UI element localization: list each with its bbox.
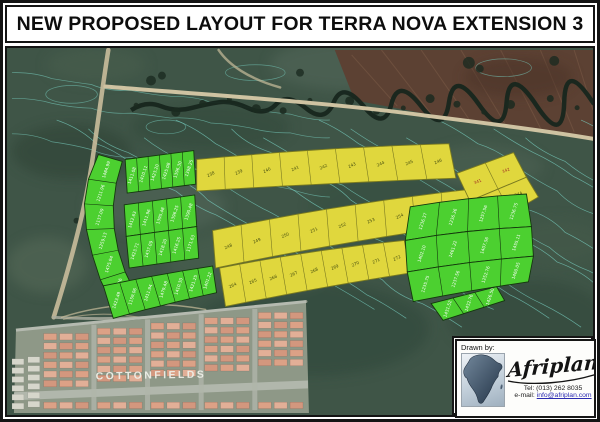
house [274, 350, 287, 356]
house [236, 355, 249, 361]
tree [296, 69, 304, 77]
house [44, 402, 57, 408]
tree [199, 100, 206, 107]
housing-street [145, 319, 150, 410]
house [97, 356, 110, 362]
house [221, 318, 234, 324]
title-bar: NEW PROPOSED LAYOUT FOR TERRA NOVA EXTEN… [5, 5, 595, 43]
house [44, 362, 57, 368]
building [28, 401, 40, 407]
house [221, 336, 234, 342]
building [28, 383, 40, 389]
house [76, 334, 89, 340]
tree [463, 57, 475, 69]
building [12, 377, 24, 383]
house [97, 347, 110, 353]
house [183, 351, 196, 357]
house [129, 402, 142, 408]
house [76, 380, 89, 386]
house [221, 365, 234, 371]
house [97, 328, 110, 334]
email-row: e-mail: info@afriplan.com [507, 392, 596, 399]
house [258, 341, 271, 347]
house [205, 327, 218, 333]
house [274, 322, 287, 328]
house [167, 323, 180, 329]
building [28, 392, 40, 398]
house [183, 332, 196, 338]
tree [506, 100, 515, 109]
house [205, 365, 218, 371]
house [258, 322, 271, 328]
housing-street [91, 325, 96, 410]
house [60, 371, 73, 377]
house [129, 338, 142, 344]
tel-label: Tel: (013) 262 8035 [507, 385, 596, 392]
house [258, 350, 271, 356]
tree [401, 105, 406, 110]
house [290, 312, 303, 318]
house [44, 352, 57, 358]
house [290, 402, 303, 408]
house [76, 402, 89, 408]
credit-box: Drawn by: Afriplan Tel: (013) 262 8035 e… [455, 339, 596, 418]
email-label: e-mail: [514, 392, 536, 399]
tree [345, 97, 354, 106]
tree [481, 110, 486, 115]
housing-street [252, 309, 257, 410]
house [274, 341, 287, 347]
building [12, 359, 24, 365]
house [183, 360, 196, 366]
house [76, 362, 89, 368]
house [76, 343, 89, 349]
house [290, 350, 303, 356]
house [76, 371, 89, 377]
house [290, 331, 303, 337]
tree [134, 103, 139, 108]
house [205, 318, 218, 324]
house [167, 360, 180, 366]
house [97, 402, 110, 408]
house [274, 359, 287, 365]
house [236, 402, 249, 408]
building [12, 394, 24, 400]
house [258, 359, 271, 365]
house [258, 331, 271, 337]
house [60, 343, 73, 349]
building [12, 385, 24, 391]
house [129, 347, 142, 353]
house [183, 402, 196, 408]
house [151, 342, 164, 348]
house [113, 356, 126, 362]
house [205, 402, 218, 408]
house [221, 327, 234, 333]
email-link: info@afriplan.com [537, 392, 592, 399]
housing-street [199, 314, 204, 410]
house [221, 346, 234, 352]
page: NEW PROPOSED LAYOUT FOR TERRA NOVA EXTEN… [0, 0, 600, 422]
house [274, 402, 287, 408]
house [183, 323, 196, 329]
house [151, 351, 164, 357]
house [151, 402, 164, 408]
house [129, 328, 142, 334]
page-title: NEW PROPOSED LAYOUT FOR TERRA NOVA EXTEN… [17, 13, 584, 36]
house [60, 362, 73, 368]
house [60, 334, 73, 340]
tree [476, 65, 484, 73]
house [167, 402, 180, 408]
house [97, 338, 110, 344]
tree [146, 76, 156, 86]
house [60, 352, 73, 358]
house [113, 338, 126, 344]
house [236, 365, 249, 371]
africa-icon [461, 353, 505, 407]
building [28, 366, 40, 372]
house [183, 342, 196, 348]
house [167, 342, 180, 348]
house [274, 312, 287, 318]
building [28, 375, 40, 381]
house [236, 336, 249, 342]
building [12, 403, 24, 409]
tree [547, 95, 554, 102]
house [151, 360, 164, 366]
house [236, 327, 249, 333]
house [258, 402, 271, 408]
house [258, 312, 271, 318]
house [113, 347, 126, 353]
house [205, 346, 218, 352]
house [274, 331, 287, 337]
house [151, 332, 164, 338]
afriplan-logo: Afriplan Tel: (013) 262 8035 e-mail: inf… [461, 353, 590, 407]
house [151, 323, 164, 329]
house [113, 328, 126, 334]
tree [252, 104, 261, 113]
drawn-by-label: Drawn by: [461, 343, 590, 352]
house [290, 322, 303, 328]
tree [453, 101, 460, 108]
tree [171, 108, 180, 117]
house [236, 346, 249, 352]
tree [158, 72, 166, 80]
house [221, 402, 234, 408]
house [44, 343, 57, 349]
house [60, 380, 73, 386]
house [236, 318, 249, 324]
house [167, 351, 180, 357]
house [290, 359, 303, 365]
tree [426, 94, 435, 103]
house [129, 356, 142, 362]
tree [575, 105, 580, 110]
house [44, 371, 57, 377]
house [205, 336, 218, 342]
cottonfields-label: COTTONFIELDS [96, 370, 207, 383]
house [44, 334, 57, 340]
house [44, 380, 57, 386]
building [28, 357, 40, 363]
house [221, 355, 234, 361]
house [113, 402, 126, 408]
house [290, 341, 303, 347]
building [12, 368, 24, 374]
house [167, 332, 180, 338]
house [60, 402, 73, 408]
tree [280, 107, 287, 114]
tree [549, 56, 559, 66]
house [205, 355, 218, 361]
house [76, 352, 89, 358]
